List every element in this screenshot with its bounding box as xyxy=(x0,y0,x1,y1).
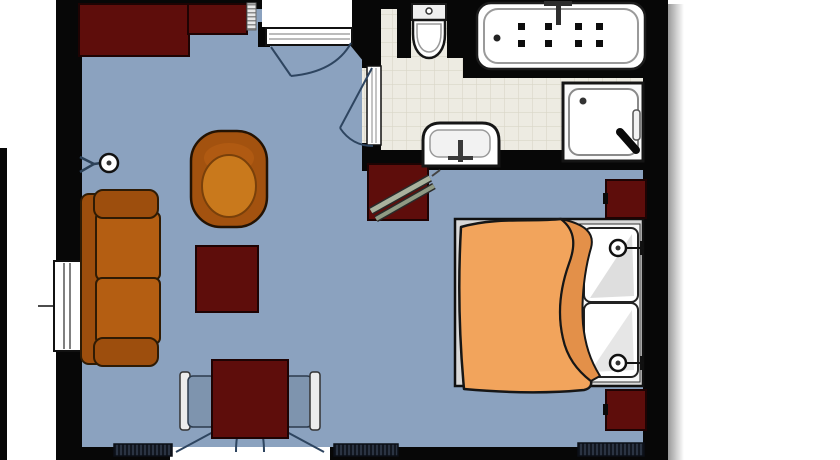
toilet xyxy=(412,4,446,58)
nightstand-bottom-handle xyxy=(603,404,608,415)
nightstand-top xyxy=(603,180,646,218)
wall-left xyxy=(56,0,82,460)
radiator-middle xyxy=(334,444,398,456)
dining-chair-right-back xyxy=(310,372,320,430)
nightstand-top-handle xyxy=(603,193,608,204)
nightstand-bottom xyxy=(603,390,646,430)
sofa-cushion-bottom xyxy=(96,278,160,344)
entry-door-leaf xyxy=(266,28,352,45)
floor-plan-screenshot xyxy=(0,0,840,460)
wall-heater-strip xyxy=(247,3,256,30)
jetted-bathtub xyxy=(477,1,645,69)
armchair-seat-cushion xyxy=(202,155,256,217)
bathtub-faucet-stem xyxy=(556,5,561,25)
dining-chair-right-seat xyxy=(285,376,312,427)
sofa-armrest-top xyxy=(94,190,158,218)
wall-toilet-niche-left xyxy=(397,0,411,58)
balcony-door-opening xyxy=(170,447,330,460)
toilet-flush-button xyxy=(426,8,432,14)
coffee-table xyxy=(196,246,258,312)
wall-fragment-far-left xyxy=(0,148,7,460)
bathroom-door-leaf xyxy=(367,66,381,145)
washbasin xyxy=(423,123,499,166)
floor-plan xyxy=(0,0,840,460)
sofa xyxy=(81,190,160,366)
shower-rail xyxy=(633,110,640,140)
sofa-cushion-top xyxy=(96,212,160,280)
entry-door-opening xyxy=(262,0,352,27)
armchair xyxy=(191,131,267,227)
radiator-left xyxy=(114,444,172,456)
shower xyxy=(563,83,643,161)
shower-drain xyxy=(580,98,587,105)
bathtub-drain xyxy=(494,35,501,42)
sofa-armrest-bottom xyxy=(94,338,158,366)
radiator-bedroom xyxy=(578,443,644,456)
dining-table xyxy=(212,360,288,438)
wall-toilet-niche-right xyxy=(447,0,465,58)
dining-chair-left-seat xyxy=(188,376,215,427)
washbasin-faucet-bar xyxy=(448,156,473,160)
plan-drop-shadow xyxy=(668,4,684,460)
